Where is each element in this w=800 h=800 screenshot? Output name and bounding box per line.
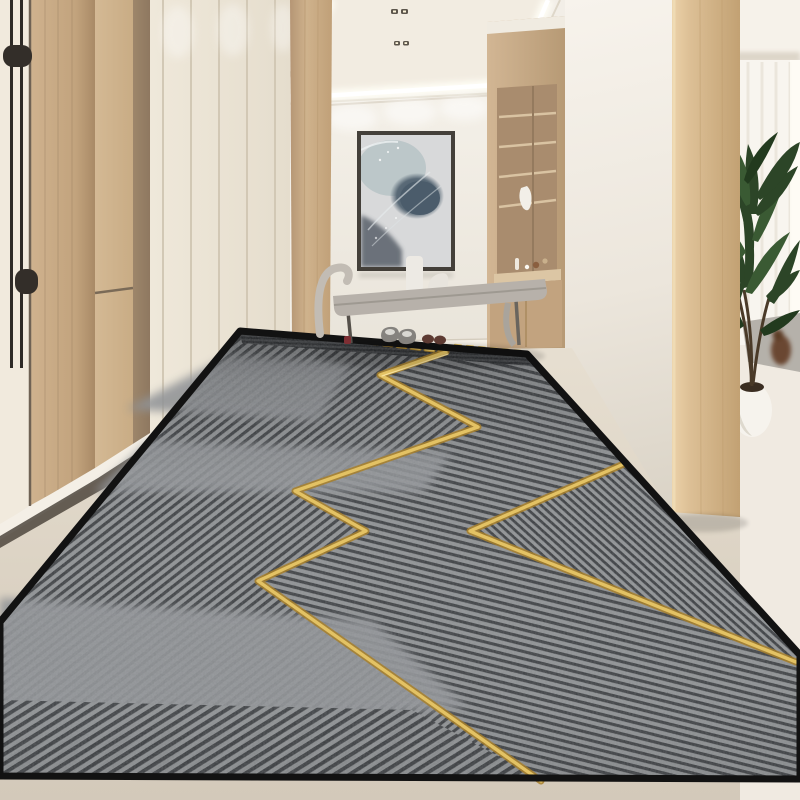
panel-gap-shadow [133,0,150,452]
wood-pilaster [290,0,332,342]
wood-pillar [672,0,740,518]
side-room-ceiling [736,0,800,58]
bench-shadow [315,343,545,369]
scene-canvas [0,0,800,800]
hallway-photo [0,0,800,800]
wood-panel-near [31,0,95,505]
entry-door-face [0,0,31,525]
artwork [357,131,455,278]
window-light [790,60,800,350]
red-accent-object [344,336,351,344]
